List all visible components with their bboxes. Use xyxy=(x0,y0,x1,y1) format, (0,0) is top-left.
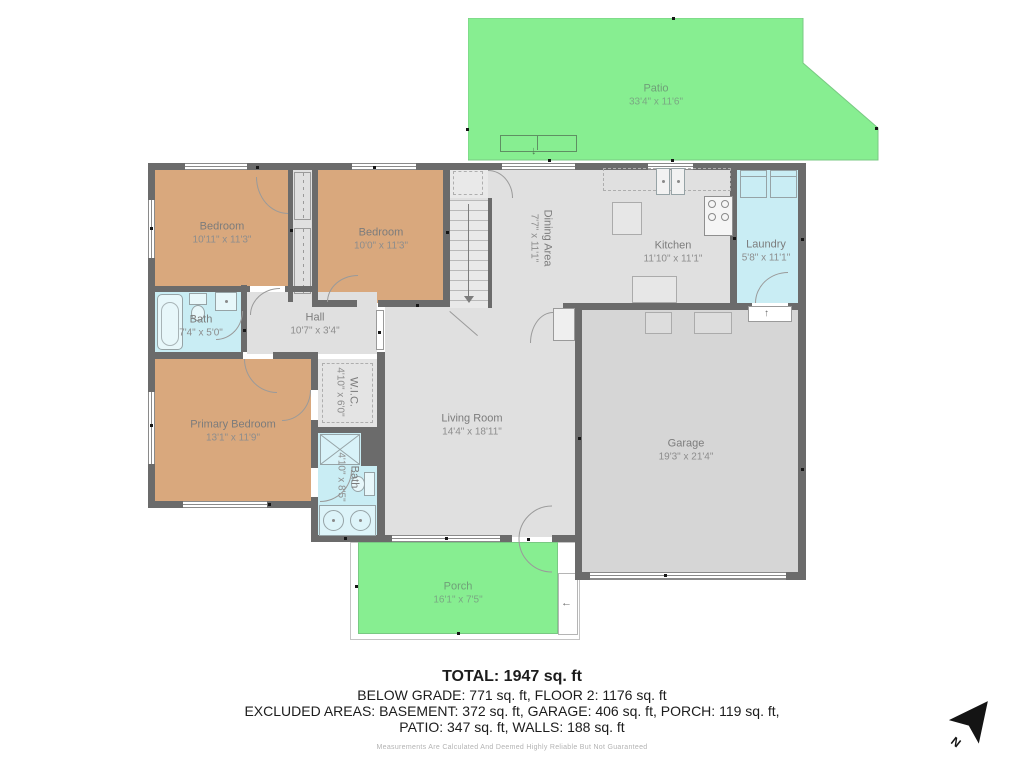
bath2-drain-right xyxy=(359,519,362,522)
summary-disclaimer: Measurements Are Calculated And Deemed H… xyxy=(0,744,1024,751)
garage-cabinet-1 xyxy=(645,312,672,334)
patio-slider-door xyxy=(502,163,575,170)
marker-dot xyxy=(256,166,259,169)
wall-bedroom2-left xyxy=(312,170,318,302)
marker-dot xyxy=(733,237,736,240)
marker-dot xyxy=(344,537,347,540)
window-bedroom2-top xyxy=(352,163,416,170)
stair-arrow-line xyxy=(468,204,469,296)
kitchen-island xyxy=(612,202,642,235)
wall-hall-bottom-a xyxy=(148,352,243,359)
window-primary-bottom xyxy=(183,501,267,508)
sink-drain-left xyxy=(662,180,665,183)
door-arc-front-entry xyxy=(518,505,553,574)
wall-bath2-bottom xyxy=(311,535,385,542)
room-label-porch: Porch 16'1" x 7'5" xyxy=(433,580,482,607)
stair-closet-rod xyxy=(453,171,483,195)
washer xyxy=(740,170,767,198)
dryer xyxy=(770,170,797,198)
marker-dot xyxy=(671,159,674,162)
patio-door-arrow-icon: ↓ xyxy=(531,146,537,157)
garage-door xyxy=(590,572,786,580)
marker-dot xyxy=(150,227,153,230)
wall-shower-nib xyxy=(361,433,377,466)
stair-down-arrow-icon xyxy=(464,296,474,303)
room-label-garage: Garage 19'3" x 21'4" xyxy=(659,437,714,464)
marker-dot xyxy=(548,159,551,162)
room-label-bath-1: Bath 7'4" x 5'0" xyxy=(179,313,223,340)
bedroom-closet-bottom xyxy=(294,228,311,294)
marker-dot xyxy=(445,537,448,540)
room-label-living-room: Living Room 14'4" x 18'11" xyxy=(441,412,502,439)
marker-dot xyxy=(290,229,293,232)
room-label-laundry: Laundry 5'8" x 11'1" xyxy=(742,238,791,265)
stove-burner-1 xyxy=(708,200,716,208)
marker-dot xyxy=(457,632,460,635)
marker-dot xyxy=(466,128,469,131)
marker-dot xyxy=(416,304,419,307)
wall-bedroom2-bottom-b xyxy=(378,300,450,307)
wall-bedroom1-bottom-b xyxy=(285,286,312,292)
window-primary-left xyxy=(148,392,155,464)
sink-drain-right xyxy=(677,180,680,183)
bedroom-closet-top xyxy=(294,172,311,220)
wall-living-bottom-c xyxy=(552,535,582,542)
summary-line-2: BELOW GRADE: 771 sq. ft, FLOOR 2: 1176 s… xyxy=(0,687,1024,703)
marker-dot xyxy=(355,585,358,588)
wall-primary-right-b xyxy=(311,420,318,468)
room-label-primary-bedroom: Primary Bedroom 13'1" x 11'9" xyxy=(190,418,276,445)
garage-step-to-laundry xyxy=(748,306,792,322)
wall-wic-bath-right xyxy=(377,352,385,542)
summary-line-4: PATIO: 347 sq. ft, WALLS: 188 sq. ft xyxy=(0,719,1024,735)
wall-kitchen-bottom-a xyxy=(563,303,752,310)
marker-dot xyxy=(378,331,381,334)
bath2-drain-left xyxy=(332,519,335,522)
stove-burner-4 xyxy=(721,213,729,221)
stove-burner-3 xyxy=(708,213,716,221)
marker-dot xyxy=(527,538,530,541)
garage-entry-landing xyxy=(553,308,575,341)
bathtub-basin xyxy=(161,302,179,346)
room-label-dining: Dining Area 7'7" x 11'1" xyxy=(528,210,555,267)
marker-dot xyxy=(875,127,878,130)
wall-living-bottom-b xyxy=(500,535,512,542)
window-bedroom1-top xyxy=(185,163,247,170)
wall-living-bottom-a xyxy=(378,535,392,542)
patio-step-divider xyxy=(537,135,538,150)
marker-dot xyxy=(373,166,376,169)
patio-step-table xyxy=(500,135,577,152)
wall-bedroom1-right xyxy=(288,170,293,302)
garage-step-arrow-icon: ↑ xyxy=(764,308,769,319)
wall-primary-right-a xyxy=(311,352,318,390)
room-label-hall: Hall 10'7" x 3'4" xyxy=(290,311,339,338)
hall-doorway xyxy=(376,310,384,350)
room-label-bedroom-1: Bedroom 10'11" x 11'3" xyxy=(193,220,252,247)
wall-exterior-right xyxy=(798,163,806,580)
porch-step-arrow-icon: ← xyxy=(561,598,572,609)
staircase xyxy=(450,200,488,308)
marker-dot xyxy=(801,238,804,241)
room-label-patio: Patio 33'4" x 11'6" xyxy=(629,82,683,109)
marker-dot xyxy=(672,17,675,20)
marker-dot xyxy=(446,231,449,234)
marker-dot xyxy=(150,424,153,427)
kitchen-peninsula xyxy=(632,276,677,303)
room-label-bath-2: Bath 4'10" x 8'5" xyxy=(335,452,362,501)
stair-side-wall xyxy=(488,198,492,308)
toilet1-tank xyxy=(189,293,207,305)
garage-cabinet-2 xyxy=(694,312,732,334)
summary-line-3: EXCLUDED AREAS: BASEMENT: 372 sq. ft, GA… xyxy=(0,703,1024,719)
stove-burner-2 xyxy=(721,200,729,208)
bath1-sink-drain xyxy=(225,300,228,303)
summary-total: TOTAL: 1947 sq. ft xyxy=(0,668,1024,686)
marker-dot xyxy=(578,437,581,440)
marker-dot xyxy=(664,574,667,577)
room-label-kitchen: Kitchen 11'10" x 11'1" xyxy=(644,239,703,266)
marker-dot xyxy=(801,468,804,471)
marker-dot xyxy=(243,329,246,332)
wall-bedroom2-right xyxy=(443,170,450,307)
marker-dot xyxy=(268,503,271,506)
floor-plan-canvas: ↓ ← xyxy=(0,0,1024,768)
room-label-bedroom-2: Bedroom 10'0" x 11'3" xyxy=(354,226,408,253)
room-label-wic: W.I.C. 4'10" x 6'0" xyxy=(334,367,361,416)
toilet2-tank xyxy=(364,472,375,496)
